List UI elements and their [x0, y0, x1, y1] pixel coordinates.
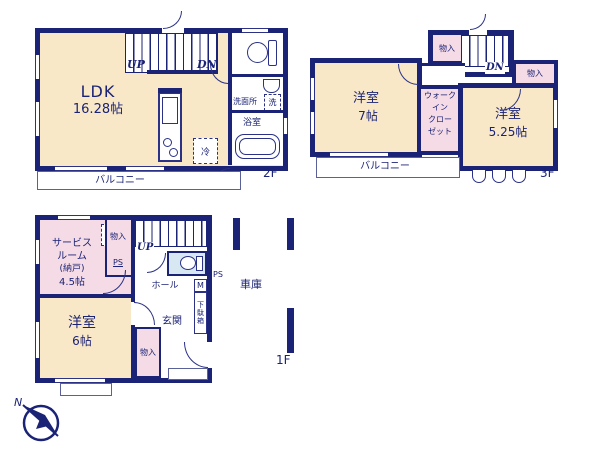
garage-wall-1: [233, 218, 240, 250]
balcony-3f-label: バルコニー: [360, 161, 410, 173]
wic-label-1: ウォーク: [424, 91, 456, 100]
up-label-2f: UP: [127, 59, 145, 72]
window-2f-toilet-top: [242, 28, 268, 33]
window-3f-right: [553, 100, 558, 128]
storage-1f-top-label: 物入: [110, 232, 126, 241]
dn-label-3f: DN: [485, 62, 505, 74]
ldk-size-label: 16.28帖: [73, 103, 123, 118]
casement-window-3: [512, 170, 526, 183]
storage-1f-bottom: 物入: [135, 327, 161, 378]
toilet-icon-2f: [268, 40, 277, 66]
service-room-label-4: 4.5帖: [59, 277, 85, 289]
casement-window-2: [492, 170, 506, 183]
ldk-label: LDK: [81, 83, 116, 101]
shoe-box: 下駄箱: [194, 292, 207, 334]
casement-window-1: [472, 170, 486, 183]
meter-box: M: [194, 279, 207, 292]
kitchen-sink-icon: [162, 97, 178, 124]
fridge-label: 冷: [201, 145, 210, 158]
service-room-label-3: (納戸): [59, 264, 84, 274]
balcony-2f-label: バルコニー: [95, 175, 145, 187]
storage-3f-right-label: 物入: [527, 69, 543, 78]
entrance-step: [168, 368, 208, 380]
room7-size-label: 7帖: [358, 110, 378, 124]
bathtub-inner-icon: [239, 138, 276, 155]
washer-space: 洗: [264, 94, 281, 111]
outdoor-step: [60, 383, 112, 396]
entrance-label: 玄関: [162, 316, 182, 328]
ps-top-label: PS: [113, 258, 123, 267]
kitchen-wall-stub: [158, 88, 182, 93]
wic-label-2: イン: [432, 103, 448, 112]
storage-3f-top-label: 物入: [439, 44, 455, 53]
room7-label: 洋室: [353, 92, 379, 107]
room6-size-label: 6帖: [72, 335, 92, 349]
window-2f-left-2: [35, 102, 40, 136]
meter-label: M: [197, 281, 204, 290]
toilet-bowl-icon-2f: [247, 42, 268, 63]
ps-right-label: PS: [213, 270, 223, 279]
window-2f-left-1: [35, 55, 40, 79]
floor-2f-label: 2F: [263, 167, 278, 181]
door-arc-2f-top: [163, 11, 182, 29]
window-3f-left-1: [310, 78, 315, 100]
garage-wall-2: [287, 218, 294, 250]
3f-top-door-gap: [469, 30, 487, 35]
door-arc-3f-top: [470, 14, 486, 30]
floor-3f-label: 3F: [540, 167, 555, 181]
compass-north-label: N: [14, 396, 22, 409]
fridge-space: 冷: [193, 138, 218, 164]
service-room-label-1: サービス: [52, 238, 92, 250]
window-3f-left-2: [310, 112, 315, 134]
up-label-1f: UP: [136, 242, 154, 254]
wic-label-3: クロー: [428, 115, 452, 124]
window-1f-left-2: [35, 322, 40, 358]
shoe-box-label: 下駄箱: [196, 301, 204, 325]
washer-label: 洗: [269, 97, 277, 108]
toilet-bowl-icon-1f: [180, 256, 196, 270]
room525-label: 洋室: [495, 108, 521, 123]
compass-icon: N: [12, 393, 66, 447]
room525-size-label: 5.25帖: [489, 126, 528, 140]
floor-1f-label: 1F: [276, 354, 291, 368]
garage-label: 車庫: [240, 279, 262, 292]
stove-burner-icon-2: [169, 148, 178, 157]
stove-burner-icon-1: [163, 138, 172, 147]
garage-wall-3: [287, 308, 294, 353]
storage-ps-strip: [105, 220, 131, 277]
wic-label-4: ゼット: [428, 127, 452, 136]
window-1f-left-1: [35, 240, 40, 264]
washroom-label: 洗面所: [233, 97, 257, 106]
bath-label: 浴室: [243, 118, 261, 128]
room6-label: 洋室: [68, 315, 96, 331]
window-1f-top: [58, 215, 90, 220]
toilet-icon-1f: [196, 256, 203, 271]
window-2f-bath-right: [283, 118, 288, 134]
service-room-label-2: ルーム: [57, 251, 87, 263]
hall-label: ホール: [151, 281, 178, 291]
compass: N: [12, 393, 66, 447]
storage-1f-bottom-label: 物入: [140, 348, 156, 357]
